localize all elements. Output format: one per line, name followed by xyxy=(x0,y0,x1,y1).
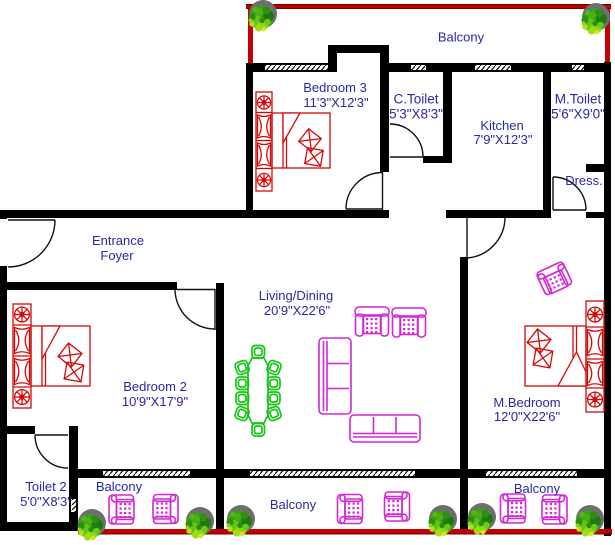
svg-text:Living/Dining: Living/Dining xyxy=(259,288,333,303)
svg-text:Bedroom 3: Bedroom 3 xyxy=(303,80,367,95)
svg-text:Foyer: Foyer xyxy=(100,248,134,263)
svg-text:7'9"X12'3": 7'9"X12'3" xyxy=(473,132,532,147)
svg-text:Balcony: Balcony xyxy=(514,481,561,496)
svg-text:5'3"X8'3": 5'3"X8'3" xyxy=(389,107,443,122)
svg-text:10'9"X17'9": 10'9"X17'9" xyxy=(122,394,189,409)
svg-text:Entrance: Entrance xyxy=(92,233,144,248)
svg-text:Bedroom 2: Bedroom 2 xyxy=(123,379,187,394)
svg-text:12'0"X22'6": 12'0"X22'6" xyxy=(494,409,561,424)
svg-text:M.Toilet: M.Toilet xyxy=(555,92,602,107)
svg-text:Balcony: Balcony xyxy=(270,497,317,512)
svg-text:C.Toilet: C.Toilet xyxy=(393,92,438,107)
svg-text:Balcony: Balcony xyxy=(96,479,143,494)
svg-text:5'6"X9'0": 5'6"X9'0" xyxy=(551,107,605,122)
svg-text:11'3"X12'3": 11'3"X12'3" xyxy=(303,95,369,110)
svg-text:M.Bedroom: M.Bedroom xyxy=(493,395,560,410)
svg-text:20'9"X22'6": 20'9"X22'6" xyxy=(264,303,331,318)
svg-text:Balcony: Balcony xyxy=(438,30,485,45)
svg-text:5'0"X8'3": 5'0"X8'3" xyxy=(20,494,72,509)
svg-text:Toilet 2: Toilet 2 xyxy=(25,479,66,494)
svg-text:Kitchen: Kitchen xyxy=(480,118,523,133)
svg-text:Dress.: Dress. xyxy=(565,173,603,188)
